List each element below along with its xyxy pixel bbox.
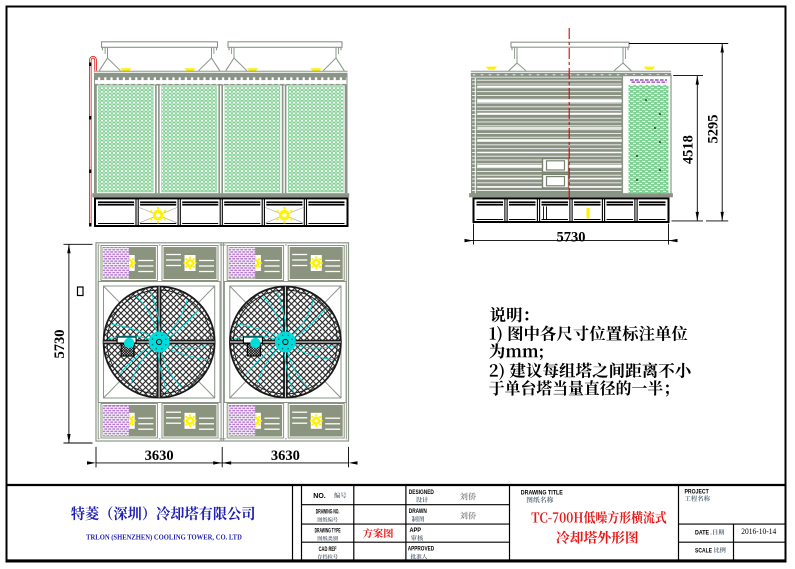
svg-text:DRAWN: DRAWN bbox=[409, 508, 427, 515]
svg-text:TRLON (SHENZHEN) COOLING TOWER: TRLON (SHENZHEN) COOLING TOWER, CO. LTD bbox=[86, 533, 242, 542]
svg-text:DATE: DATE bbox=[695, 530, 709, 536]
svg-text:NO.: NO. bbox=[313, 493, 326, 500]
svg-text:CAD REF: CAD REF bbox=[319, 547, 337, 553]
svg-text:5295: 5295 bbox=[705, 115, 721, 144]
svg-text:3630: 3630 bbox=[271, 448, 300, 464]
svg-text:4518: 4518 bbox=[681, 135, 697, 164]
svg-text:5730: 5730 bbox=[557, 230, 586, 246]
svg-text:PROJECT: PROJECT bbox=[685, 489, 709, 495]
svg-text:DRAWING NO.: DRAWING NO. bbox=[316, 510, 340, 516]
svg-text:APP: APP bbox=[410, 527, 422, 534]
svg-text:5730: 5730 bbox=[52, 330, 68, 359]
svg-text:2016-10-14: 2016-10-14 bbox=[741, 527, 776, 536]
svg-text:DRAWING TYPE: DRAWING TYPE bbox=[315, 529, 341, 535]
svg-text:SCALE: SCALE bbox=[695, 548, 712, 554]
svg-text:DESIGNED: DESIGNED bbox=[409, 490, 435, 496]
svg-text:APPROVED: APPROVED bbox=[408, 547, 435, 553]
svg-text:DRAWING TITLE: DRAWING TITLE bbox=[521, 490, 563, 496]
svg-text:3630: 3630 bbox=[145, 448, 174, 464]
